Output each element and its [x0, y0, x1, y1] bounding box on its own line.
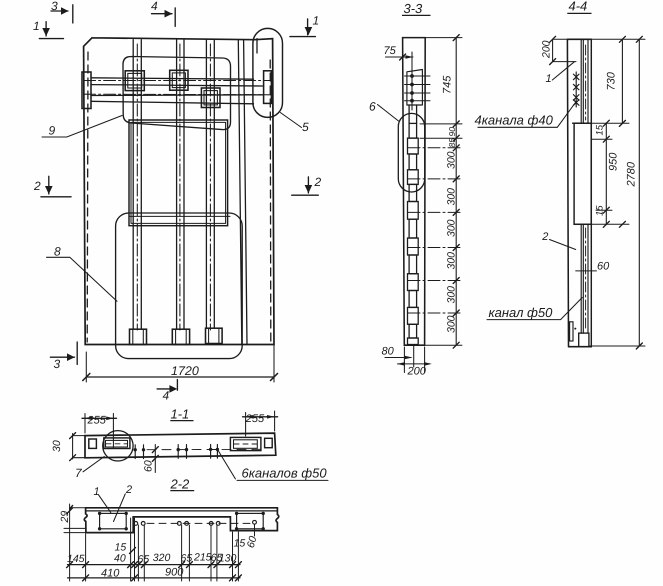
svg-text:1-1: 1-1	[171, 407, 190, 422]
svg-text:60: 60	[143, 460, 155, 472]
svg-text:730: 730	[606, 71, 618, 90]
svg-text:255: 255	[87, 415, 107, 427]
svg-text:3: 3	[51, 0, 58, 13]
svg-text:6каналов ф50: 6каналов ф50	[242, 466, 328, 481]
svg-text:15: 15	[595, 124, 606, 135]
svg-text:9: 9	[49, 124, 56, 138]
svg-text:745: 745	[442, 75, 454, 94]
svg-text:2: 2	[314, 175, 322, 189]
svg-text:4-4: 4-4	[569, 0, 588, 14]
svg-text:300: 300	[446, 252, 458, 270]
svg-text:200: 200	[541, 40, 553, 59]
svg-text:410: 410	[101, 568, 120, 580]
svg-text:1: 1	[33, 19, 40, 33]
svg-text:950: 950	[608, 152, 620, 171]
svg-text:900: 900	[165, 567, 184, 579]
svg-text:1720: 1720	[171, 364, 199, 378]
svg-text:300: 300	[446, 219, 458, 237]
svg-text:2-2: 2-2	[170, 477, 191, 492]
svg-text:300: 300	[446, 315, 458, 333]
svg-text:2: 2	[541, 231, 548, 243]
svg-text:90: 90	[447, 127, 457, 137]
svg-text:4канала ф40: 4канала ф40	[475, 113, 554, 128]
svg-text:85: 85	[447, 138, 457, 148]
svg-text:300: 300	[446, 188, 458, 206]
svg-text:65: 65	[138, 554, 150, 566]
svg-text:1: 1	[313, 14, 320, 28]
svg-text:канал ф50: канал ф50	[489, 305, 554, 320]
svg-text:4: 4	[151, 0, 158, 13]
svg-text:29: 29	[59, 511, 71, 524]
svg-text:30: 30	[51, 440, 63, 452]
svg-text:75: 75	[384, 45, 397, 57]
svg-text:320: 320	[153, 552, 171, 564]
svg-text:65: 65	[181, 553, 193, 565]
svg-text:3-3: 3-3	[404, 1, 424, 16]
svg-text:255: 255	[245, 413, 265, 425]
svg-text:15: 15	[595, 205, 606, 216]
svg-text:1: 1	[94, 486, 100, 498]
svg-text:300: 300	[446, 286, 458, 304]
svg-text:8: 8	[54, 245, 61, 259]
svg-text:2: 2	[125, 484, 132, 496]
svg-text:40: 40	[114, 553, 126, 565]
svg-text:15: 15	[234, 538, 246, 550]
svg-text:215: 215	[193, 552, 212, 564]
svg-text:60: 60	[597, 261, 610, 273]
svg-text:5: 5	[302, 120, 309, 134]
svg-text:2: 2	[33, 179, 41, 193]
svg-text:6: 6	[369, 100, 376, 114]
svg-text:200: 200	[407, 366, 427, 378]
svg-text:145: 145	[67, 553, 85, 565]
svg-text:1: 1	[546, 73, 552, 85]
svg-text:80: 80	[382, 346, 395, 358]
svg-text:130: 130	[219, 553, 237, 565]
svg-text:2780: 2780	[626, 161, 638, 187]
svg-text:300: 300	[446, 151, 458, 169]
svg-text:4: 4	[163, 389, 170, 403]
svg-text:3: 3	[54, 357, 61, 371]
